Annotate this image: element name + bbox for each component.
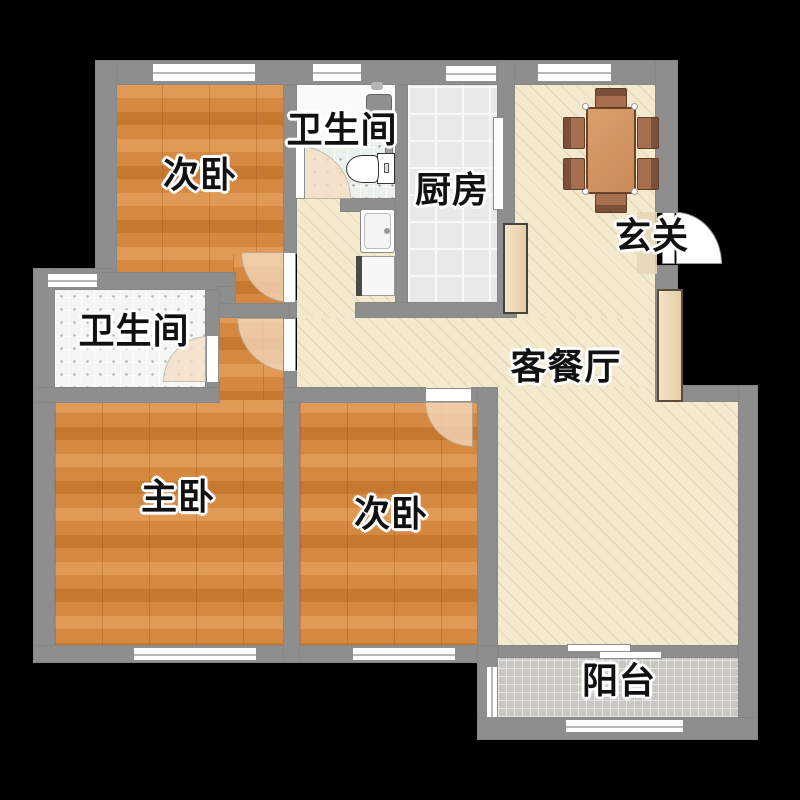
- room-label-bathroom-top: 卫生间: [286, 101, 397, 153]
- toilet-flush-icon: [384, 163, 389, 173]
- entry-cabinet: [657, 289, 683, 402]
- room-label-bathroom-left: 卫生间: [78, 302, 189, 354]
- wall-bedroom-top-left: [95, 60, 117, 290]
- room-label-balcony: 阳台: [582, 652, 656, 704]
- floor-living-lower: [498, 387, 738, 645]
- wall-bedroom-bottom-left: [283, 388, 300, 663]
- wall-bedroom-top-bottom: [95, 272, 236, 290]
- wall-bathroom-left-right-upper: [205, 290, 220, 338]
- toilet-bowl-icon: [346, 155, 379, 183]
- door-bathroom-top: [295, 146, 305, 199]
- chair-top: [595, 88, 627, 108]
- table-foot-icon: [631, 103, 638, 110]
- chair-right-2: [637, 158, 659, 190]
- table-foot-icon: [582, 103, 589, 110]
- dining-table: [586, 107, 636, 194]
- floor-plan: 次卧 卫生间 厨房 玄关 客餐厅 卫生间 主卧 次卧 阳台: [0, 0, 800, 800]
- wall-bedroom-bottom-right: [477, 387, 498, 663]
- window-bathroom-top: [312, 63, 362, 82]
- door-bedroom-bottom: [425, 388, 472, 402]
- room-label-master-bedroom: 主卧: [141, 468, 215, 520]
- chair-left-1: [563, 117, 585, 149]
- door-bathroom-left: [206, 335, 219, 383]
- window-kitchen: [445, 65, 497, 82]
- window-bathroom-left: [47, 273, 98, 288]
- window-balcony-left: [486, 666, 498, 718]
- window-bedroom-top: [152, 63, 256, 82]
- chair-left-2: [563, 158, 585, 190]
- room-label-entry: 玄关: [615, 207, 689, 259]
- sliding-door-kitchen: [493, 117, 504, 210]
- door-corridor: [283, 318, 296, 372]
- wall-master-top: [33, 387, 220, 403]
- washer-panel-icon: [356, 256, 362, 296]
- room-label-living-dining: 客餐厅: [510, 338, 621, 390]
- faucet-icon: [384, 228, 390, 234]
- wall-right-lower: [738, 385, 758, 740]
- wall-left: [33, 268, 55, 663]
- floor-master-bedroom: [55, 400, 283, 645]
- window-bedroom-bottom: [352, 647, 456, 661]
- window-balcony-bottom: [565, 719, 684, 733]
- chair-right-1: [637, 117, 659, 149]
- room-label-bedroom-bottom: 次卧: [354, 485, 428, 537]
- wall-kitchen-bottom: [355, 302, 517, 318]
- vent-icon: [371, 82, 383, 90]
- living-cabinet: [503, 223, 528, 314]
- wall-bedroom-bottom-top-a: [283, 387, 426, 403]
- room-label-kitchen: 厨房: [415, 161, 489, 213]
- window-master-bedroom: [133, 647, 257, 661]
- room-label-bedroom-top: 次卧: [163, 146, 237, 198]
- door-bedroom-top: [283, 252, 296, 303]
- window-living: [537, 63, 612, 82]
